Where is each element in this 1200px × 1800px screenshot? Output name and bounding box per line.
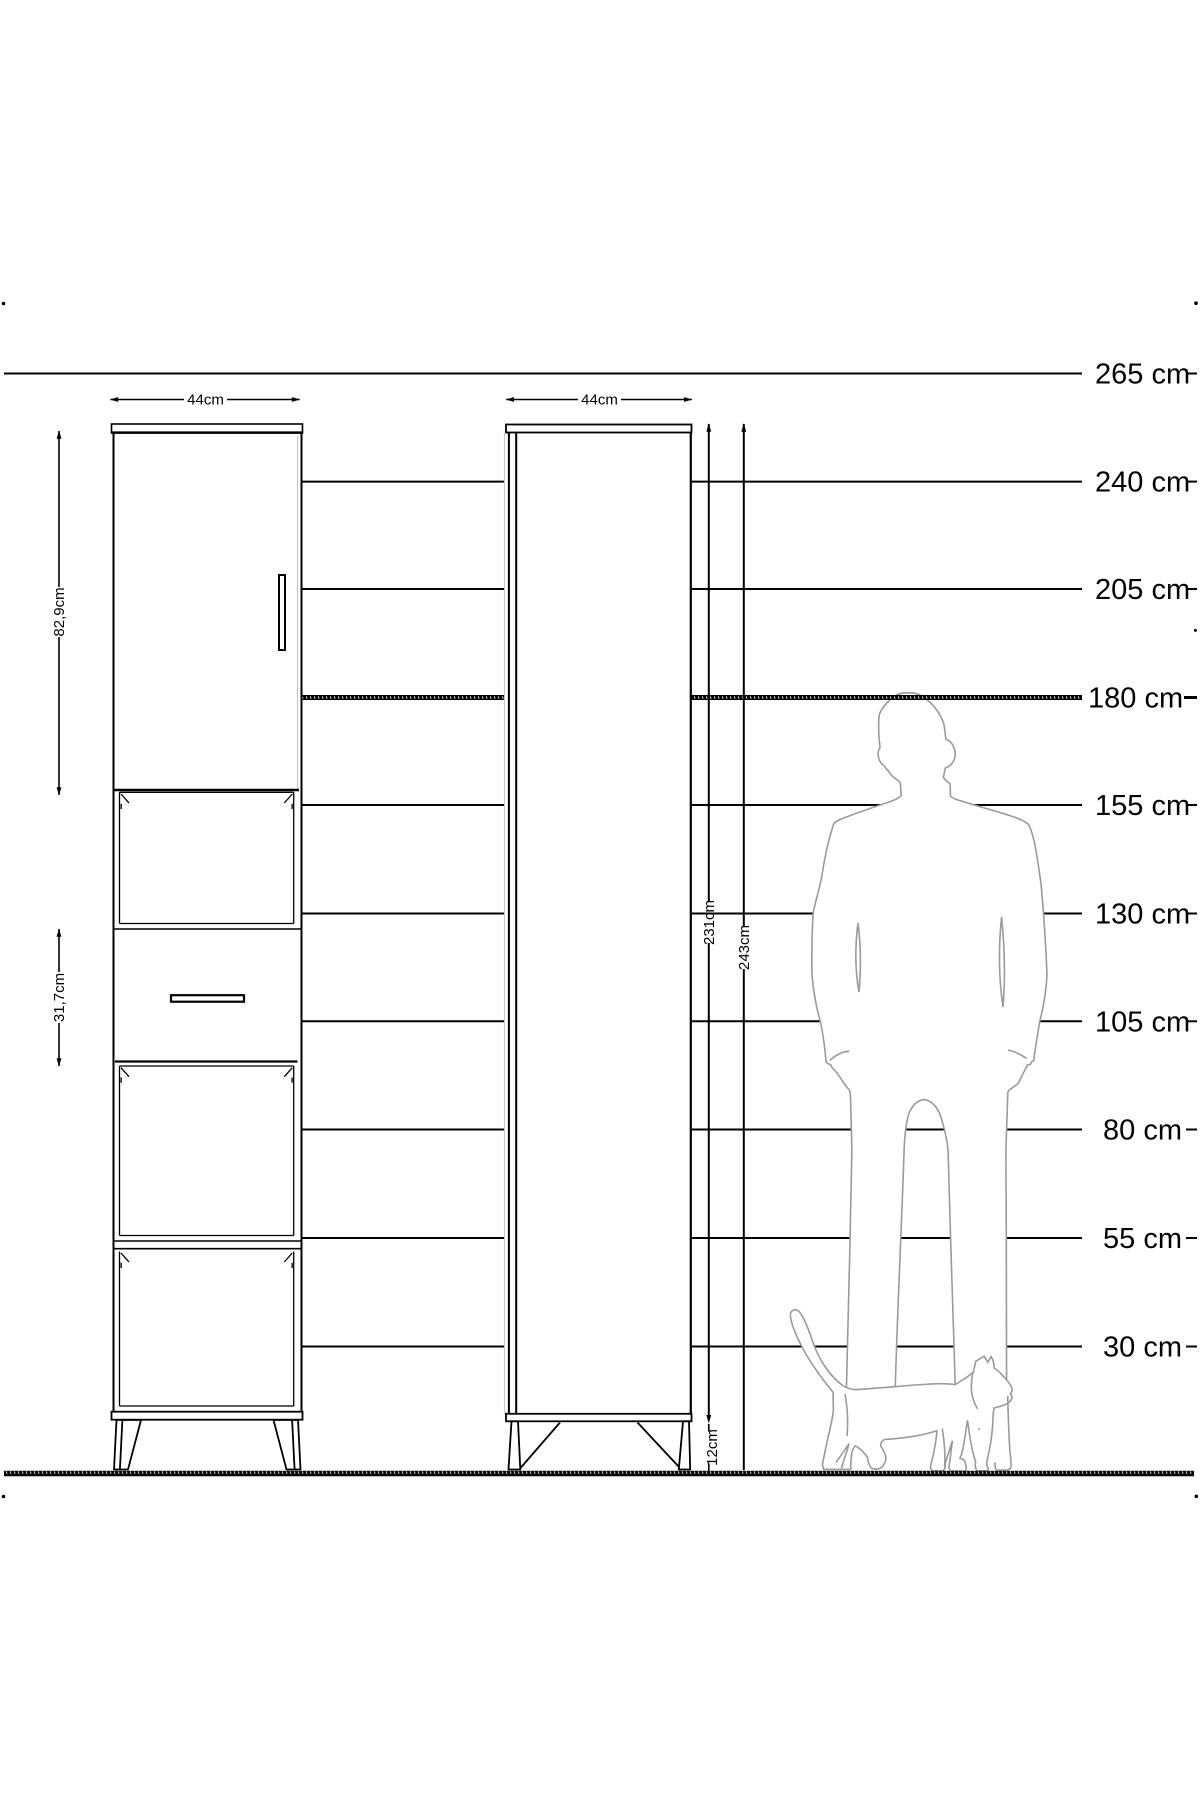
svg-text:243cm: 243cm: [736, 925, 753, 970]
svg-text:12cm: 12cm: [704, 1429, 721, 1466]
svg-text:55 cm: 55 cm: [1103, 1223, 1182, 1255]
svg-text:82,9cm: 82,9cm: [51, 587, 68, 636]
svg-text:31,7cm: 31,7cm: [51, 973, 68, 1022]
svg-text:231cm: 231cm: [701, 900, 718, 945]
svg-text:205 cm: 205 cm: [1095, 574, 1190, 606]
svg-text:155 cm: 155 cm: [1095, 790, 1190, 822]
svg-text:80 cm: 80 cm: [1103, 1115, 1182, 1147]
svg-text:265 cm: 265 cm: [1095, 359, 1190, 391]
svg-text:130 cm: 130 cm: [1095, 899, 1190, 931]
svg-text:180 cm: 180 cm: [1088, 683, 1183, 715]
svg-text:44cm: 44cm: [581, 392, 618, 409]
svg-text:44cm: 44cm: [187, 392, 224, 409]
svg-text:240 cm: 240 cm: [1095, 467, 1190, 499]
svg-text:30 cm: 30 cm: [1103, 1332, 1182, 1364]
svg-text:105 cm: 105 cm: [1095, 1006, 1190, 1038]
